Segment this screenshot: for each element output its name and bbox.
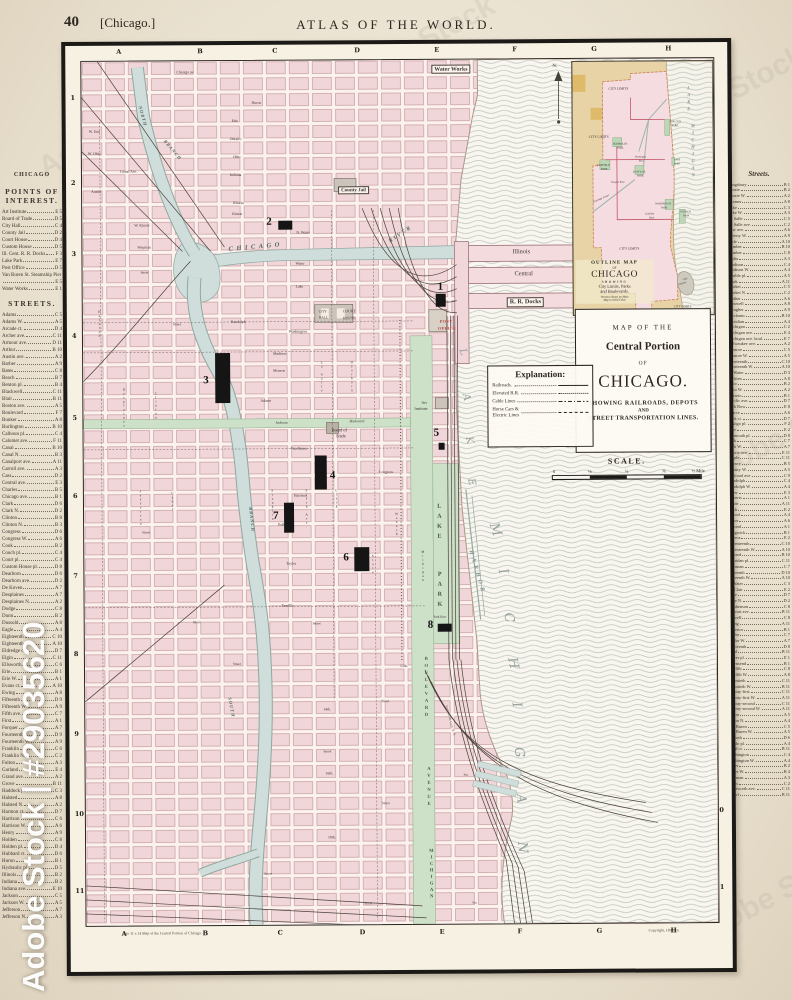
scale-segment xyxy=(590,476,627,479)
street-entry: CassD 2 xyxy=(2,473,62,480)
street-entry: City HallC 4 xyxy=(2,223,62,230)
street-entry: Court pl.C 4 xyxy=(2,557,62,564)
street-entry: BeachB 7 xyxy=(2,375,62,382)
street-entry: Grand ave.A 2 xyxy=(2,774,62,781)
map-title-line: AND xyxy=(576,408,710,414)
grid-row-number: 8 xyxy=(74,650,79,658)
street-entry: HoldenC 8 xyxy=(2,837,62,844)
grid-row-number: 5 xyxy=(72,414,77,422)
street-entry: Custom House pl.D 8 xyxy=(2,564,62,571)
legend-item: Horse Cars & Electric Lines xyxy=(492,407,588,419)
grid-column-letter: H xyxy=(665,44,671,52)
scale-bar: 0⅛¼⅜½ Mile xyxy=(552,474,702,480)
grid-column-letter: G xyxy=(597,927,603,935)
inset-title-block: OUTLINE MAP OF CHICAGO SHOWING City Limi… xyxy=(575,259,653,303)
grid-column-letter: B xyxy=(197,47,203,55)
street-entry: ElginC 11 xyxy=(2,655,62,662)
street-entry: FirstA 1 xyxy=(2,718,62,725)
map-footnote-left: Size 11 x 14 Map of the Central Portion … xyxy=(123,931,202,935)
street-entry: FranklinC 6 xyxy=(2,746,62,753)
street-entry: ErieB 1 xyxy=(2,669,62,676)
street-entry: Clinton N.B 3 xyxy=(2,522,62,529)
street-entry: Arcade ct.D 4 xyxy=(2,326,62,333)
street-entry: DearbornD 6 xyxy=(2,571,62,578)
street-entry: Ill. Cent. R. R. DocksF 3 xyxy=(2,251,62,258)
street-entry: AdamsC 5 xyxy=(2,312,62,319)
scale-tick: 0 xyxy=(553,469,555,474)
street-entry: Halsted N.A 2 xyxy=(2,802,62,809)
scale-segment xyxy=(553,476,590,479)
map-frame: AABBCCDDEEFFGGHH112233445566778899101011… xyxy=(61,38,737,976)
street-entry: Board of TradeD 5 xyxy=(2,216,62,223)
street-entry: Van Buren St. Steamship PierE 5 xyxy=(2,272,62,286)
street-entry: DesplainesA 7 xyxy=(2,592,62,599)
street-entry: BurlingtonB 10 xyxy=(2,424,62,431)
page-header: 40 [Chicago.] ATLAS OF THE WORLD. xyxy=(0,10,792,38)
grid-column-letter: G xyxy=(591,45,597,53)
grid-row-number: 4 xyxy=(72,332,77,340)
street-entry: Eighteenth W.A 10 xyxy=(2,641,62,648)
street-entry: BatesC 8 xyxy=(2,368,62,375)
legend-item: Cable Lines xyxy=(492,399,588,405)
street-entry: Fourteenth W.A 9 xyxy=(2,739,62,746)
street-entry: HuronB 1 xyxy=(2,858,62,865)
street-entry: ForquerA 7 xyxy=(2,725,62,732)
street-entry: WharfB 11 xyxy=(728,792,790,798)
street-entry: DodgeC 8 xyxy=(2,606,62,613)
street-entry: CanalB 10 xyxy=(2,445,62,452)
scale-box: SCALE. 0⅛¼⅜½ Mile xyxy=(552,456,702,480)
street-entry: Haddock pl.C 3 xyxy=(2,788,62,795)
street-entry: BlackwellC 11 xyxy=(2,389,62,396)
atlas-page: Adobe StockAdobe StockAdobe StockAdobe S… xyxy=(0,0,792,1000)
map-title-line: Central Portion xyxy=(576,340,710,353)
street-entry: Jackson W.A 5 xyxy=(2,900,62,907)
inset-title-line: CHICAGO xyxy=(576,269,654,279)
street-entry: Austin ave.A 2 xyxy=(2,354,62,361)
legend-line-sample xyxy=(558,412,588,413)
streets-list-left: AdamsC 5Adams W.A 5Arcade ct.D 4Archer a… xyxy=(2,312,62,921)
legend-line-sample xyxy=(558,401,588,403)
street-entry: Hydraulic pl.D 5 xyxy=(2,865,62,872)
streets-list-right: KingsburyB 1KinzieB 2Kinzie W.A 2KramerA… xyxy=(728,182,790,798)
grid-row-number: 1 xyxy=(70,94,75,102)
grid-row-number: 9 xyxy=(74,730,79,738)
map-footnote-right: Copyright, 1895, by xyxy=(649,928,680,932)
street-entry: GarlandE 4 xyxy=(2,767,62,774)
street-entry: Boston ave.A 5 xyxy=(2,403,62,410)
street-entry: Desplaines N.A 2 xyxy=(2,599,62,606)
street-entry: Congress W.A 6 xyxy=(2,536,62,543)
inset-title-line: and Boulevards. xyxy=(576,288,654,293)
street-entry: FifteenthD 9 xyxy=(2,697,62,704)
street-entry: BunkerA 8 xyxy=(2,417,62,424)
scale-title: SCALE. xyxy=(552,456,702,466)
street-entry: Eldredge ct.D 7 xyxy=(2,648,62,655)
street-entry: Art InstituteE 5 xyxy=(2,209,62,216)
street-entry: Calhoun pl.C 4 xyxy=(2,431,62,438)
grid-column-letter: A xyxy=(116,48,121,56)
street-entry: Canal N.B 3 xyxy=(2,452,62,459)
map-title-line: CHICAGO. xyxy=(576,371,710,392)
map-title-box: MAP OF THE Central Portion OF CHICAGO. S… xyxy=(575,308,712,453)
grid-row-number: 6 xyxy=(73,492,78,500)
street-entry: Harrison W.A 6 xyxy=(2,823,62,830)
street-entry: Archer ave.C 11 xyxy=(2,333,62,340)
street-entry: GroveB 11 xyxy=(2,781,62,788)
legend-line-sample xyxy=(558,393,588,394)
street-entry: Carroll ave.A 3 xyxy=(2,466,62,473)
grid-column-letter: C xyxy=(278,929,283,937)
map-title-line: STREET TRANSPORTATION LINES. xyxy=(576,415,710,422)
street-entry: HarrisonC 6 xyxy=(2,816,62,823)
street-entry: CookB 2 xyxy=(2,543,62,550)
scale-segment xyxy=(627,475,664,478)
street-entry: Lake ParkE 7 xyxy=(2,258,62,265)
street-entry: BarberA 9 xyxy=(2,361,62,368)
streets-heading-right: Streets. xyxy=(728,172,790,178)
street-entry: Couch pl.C 4 xyxy=(2,550,62,557)
street-entry: HenryA 9 xyxy=(2,830,62,837)
grid-column-letter: D xyxy=(354,46,360,54)
street-entry: JacksonC 5 xyxy=(2,893,62,900)
points-of-interest-heading: POINTS OF INTEREST. xyxy=(2,187,62,205)
street-entry: ClarkD 6 xyxy=(2,501,62,508)
street-entry: FultonA 3 xyxy=(2,760,62,767)
street-entry: De KovenA 7 xyxy=(2,585,62,592)
street-entry: Indiana ave.E 10 xyxy=(2,886,62,893)
left-index-column: CHICAGO POINTS OF INTEREST. Art Institut… xyxy=(2,172,62,921)
atlas-title: ATLAS OF THE WORLD. xyxy=(0,17,792,33)
street-entry: Dearborn ave.D 2 xyxy=(2,578,62,585)
street-entry: Fifteenth W.A 9 xyxy=(2,704,62,711)
street-entry: EllsworthC 6 xyxy=(2,662,62,669)
street-entry: BoulevardF 7 xyxy=(2,410,62,417)
street-entry: BlairB 11 xyxy=(2,396,62,403)
street-entry: Evans ct.A 10 xyxy=(2,683,62,690)
scale-segment xyxy=(664,475,701,478)
street-entry: EighteenthC 10 xyxy=(2,634,62,641)
street-entry: EagleA 4 xyxy=(2,627,62,634)
street-entry: Post OfficeD 5 xyxy=(2,265,62,272)
map-title-line: OF xyxy=(576,360,710,367)
streets-heading-left: STREETS. xyxy=(2,299,62,308)
inset-title-note: Map in Solid Color. xyxy=(576,299,654,303)
street-entry: IndianaB 2 xyxy=(2,879,62,886)
street-entry: Clark N.D 2 xyxy=(2,508,62,515)
street-entry: County JailD 2 xyxy=(2,230,62,237)
legend-item: Elevated R.R. xyxy=(492,391,588,397)
street-entry: IllinoisB 2 xyxy=(2,872,62,879)
street-entry: Erie W.A 1 xyxy=(2,676,62,683)
street-entry: Fifth ave.C 7 xyxy=(2,711,62,718)
street-entry: Adams W.A 5 xyxy=(2,319,62,326)
street-entry: Harmon ct.D 7 xyxy=(2,809,62,816)
street-entry: CharlesB 5 xyxy=(2,487,62,494)
street-entry: Chicago ave.B 1 xyxy=(2,494,62,501)
inset-map: CITY LIMITSCITY LIMITSCITY LIMITSCITY LI… xyxy=(571,60,715,316)
street-entry: Central ave.E 3 xyxy=(2,480,62,487)
grid-marks: AABBCCDDEEFFGGHH112233445566778899101011… xyxy=(65,42,727,46)
street-entry: FourteenthD 9 xyxy=(2,732,62,739)
scale-tick: ⅛ xyxy=(588,469,591,474)
street-entry: DunnB 2 xyxy=(2,613,62,620)
map-title-line: SHOWING RAILROADS, DEPOTS xyxy=(576,400,710,407)
street-entry: Water WorksE 1 xyxy=(2,286,62,293)
street-entry: Canalport ave.A 11 xyxy=(2,459,62,466)
street-entry: Franklin N.C 2 xyxy=(2,753,62,760)
grid-column-letter: E xyxy=(440,928,445,936)
map-canvas: Water WorksN.Chicago av.HuronErieOntario… xyxy=(80,57,719,927)
grid-row-number: 11 xyxy=(75,887,84,895)
grid-row-number: 10 xyxy=(75,810,84,818)
legend-line-sample xyxy=(558,385,588,386)
street-entry: Jefferson N.A 3 xyxy=(2,914,62,921)
grid-column-letter: F xyxy=(512,45,517,53)
street-entry: Hubbard ct.D 6 xyxy=(2,851,62,858)
street-entry: CongressD 6 xyxy=(2,529,62,536)
street-entry: ArthurB 10 xyxy=(2,347,62,354)
street-entry: EwingA 8 xyxy=(2,690,62,697)
scale-tick: ¼ xyxy=(625,469,628,474)
legend-item: Railroads. xyxy=(492,383,588,389)
scale-tick: ⅜ xyxy=(662,468,665,473)
street-entry: ClintonB 8 xyxy=(2,515,62,522)
street-entry: Benton pl.B 4 xyxy=(2,382,62,389)
street-entry: DussoldA 8 xyxy=(2,620,62,627)
grid-row-number: 2 xyxy=(71,179,76,187)
street-entry: JeffersonA 7 xyxy=(2,907,62,914)
points-of-interest-list: Art InstituteE 5Board of TradeD 5City Ha… xyxy=(2,209,62,293)
legend-box: Explanation: Railroads.Elevated R.R.Cabl… xyxy=(487,365,593,448)
street-entry: Custom HouseD 5 xyxy=(2,244,62,251)
grid-row-number: 3 xyxy=(71,250,76,258)
legend-rows: Railroads.Elevated R.R.Cable LinesHorse … xyxy=(492,383,588,419)
grid-column-letter: D xyxy=(360,928,366,936)
grid-column-letter: E xyxy=(434,46,439,54)
grid-column-letter: B xyxy=(203,929,209,937)
street-entry: Armour ave.D 11 xyxy=(2,340,62,347)
grid-column-letter: F xyxy=(518,927,523,935)
index-city-heading: CHICAGO xyxy=(2,172,62,179)
map-title-line: MAP OF THE xyxy=(576,323,710,332)
grid-row-number: 7 xyxy=(73,572,78,580)
street-entry: Calumet ave.F 11 xyxy=(2,438,62,445)
legend-title: Explanation: xyxy=(492,369,588,380)
street-entry: Court HouseD 4 xyxy=(2,237,62,244)
street-entry: Holden pl.D 4 xyxy=(2,844,62,851)
street-entry: HalstedA 8 xyxy=(2,795,62,802)
right-index-column: Streets. KingsburyB 1KinzieB 2Kinzie W.A… xyxy=(728,172,790,798)
scale-tick: ½ Mile xyxy=(692,468,705,473)
grid-column-letter: C xyxy=(272,47,277,55)
